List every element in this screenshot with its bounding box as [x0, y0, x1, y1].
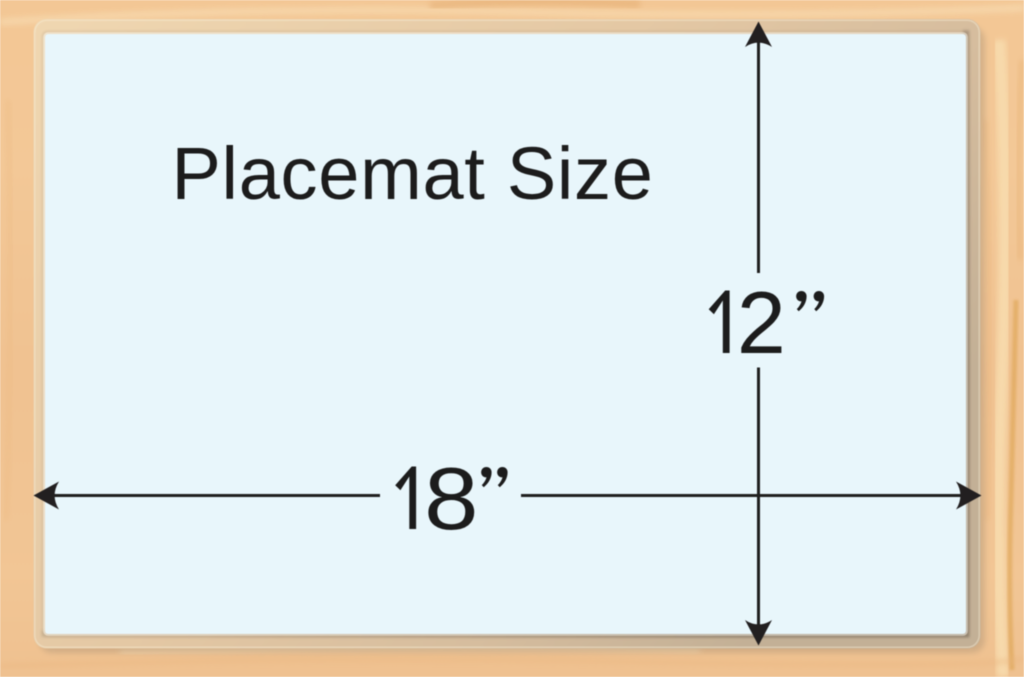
- svg-text:8: 8: [424, 449, 478, 547]
- svg-text:Placemat Size: Placemat Size: [172, 132, 654, 215]
- svg-text:2: 2: [737, 273, 786, 372]
